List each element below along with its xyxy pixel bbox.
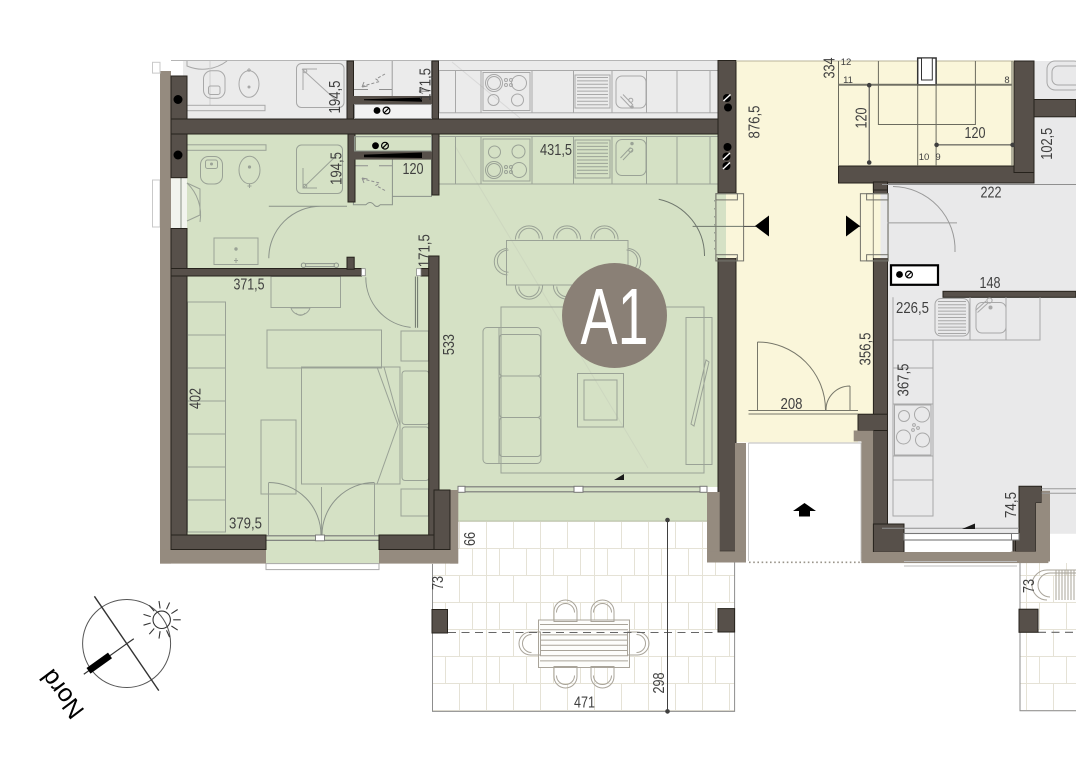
svg-text:876,5: 876,5 — [746, 105, 763, 138]
svg-text:533: 533 — [441, 334, 458, 355]
svg-text:379,5: 379,5 — [229, 515, 262, 532]
svg-text:367,5: 367,5 — [895, 363, 912, 396]
svg-text:74,5: 74,5 — [1003, 492, 1020, 518]
svg-text:73: 73 — [1021, 579, 1038, 593]
svg-text:11: 11 — [843, 75, 853, 86]
svg-text:A1: A1 — [581, 272, 649, 361]
svg-text:171,5: 171,5 — [417, 68, 434, 101]
svg-text:194,5: 194,5 — [327, 80, 344, 113]
svg-text:120: 120 — [403, 161, 424, 178]
svg-text:222: 222 — [981, 185, 1002, 202]
svg-text:66: 66 — [462, 532, 479, 546]
svg-text:431,5: 431,5 — [540, 142, 572, 159]
svg-text:102,5: 102,5 — [1039, 128, 1056, 160]
svg-text:402: 402 — [187, 388, 204, 409]
svg-text:298: 298 — [651, 672, 668, 693]
svg-text:10: 10 — [919, 152, 930, 163]
svg-text:356,5: 356,5 — [857, 332, 874, 365]
svg-text:194,5: 194,5 — [329, 152, 346, 185]
svg-text:8: 8 — [1004, 75, 1009, 86]
svg-text:120: 120 — [965, 125, 986, 142]
svg-text:148: 148 — [980, 275, 1001, 292]
svg-text:208: 208 — [781, 396, 803, 413]
svg-text:73: 73 — [430, 576, 447, 590]
svg-text:171,5: 171,5 — [416, 234, 433, 267]
svg-text:9: 9 — [935, 152, 940, 163]
svg-text:12: 12 — [841, 57, 852, 68]
svg-text:226,5: 226,5 — [896, 300, 929, 317]
svg-text:120: 120 — [853, 107, 870, 128]
svg-text:471: 471 — [574, 694, 595, 711]
svg-text:334: 334 — [821, 57, 838, 78]
svg-text:371,5: 371,5 — [234, 277, 265, 294]
